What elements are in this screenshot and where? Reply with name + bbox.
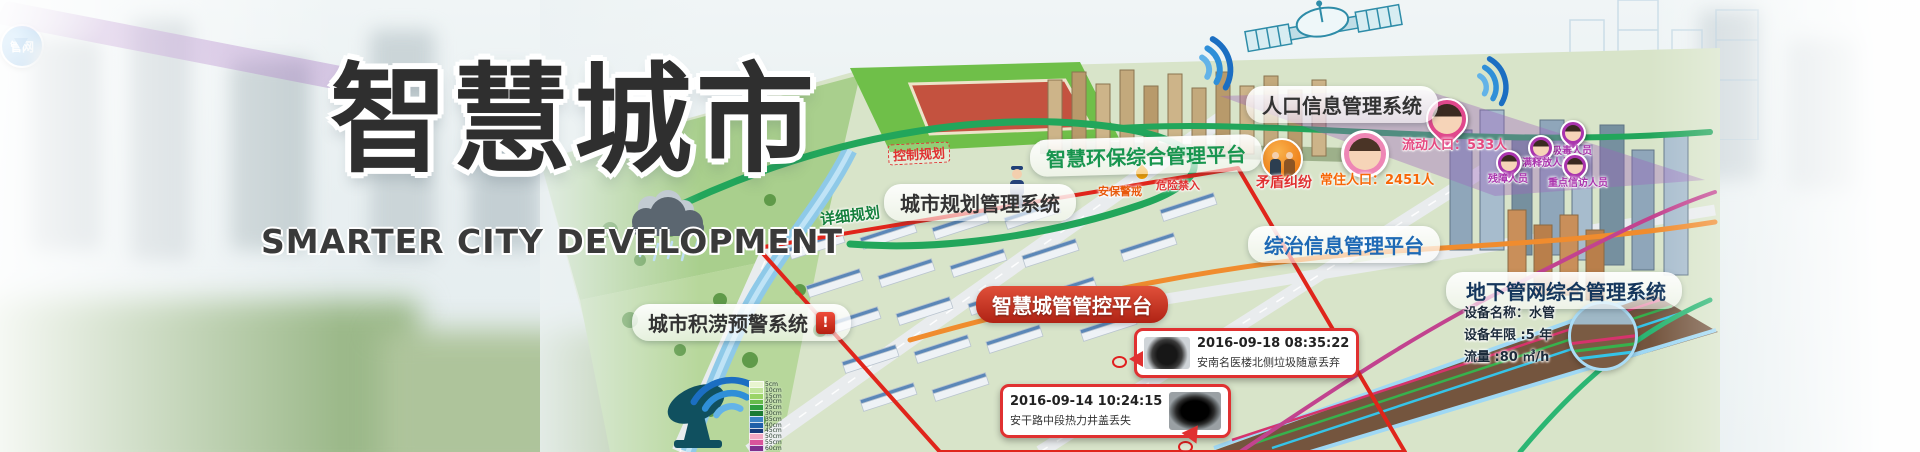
- incident-datetime: 2016-09-18 08:35:22: [1197, 336, 1349, 351]
- tag-resident-population: 常住人口：2451人: [1320, 169, 1434, 188]
- incident-callout-trash: 2016-09-18 08:35:22 安南名医楼北侧垃圾随意丢弃: [1134, 328, 1359, 378]
- blurred-building: [30, 40, 100, 250]
- tag-person-category: 残障人员: [1488, 170, 1528, 185]
- page-subtitle: SMARTER CITY DEVELOPMENT: [261, 222, 843, 261]
- incident-datetime: 2016-09-14 10:24:15: [1010, 394, 1162, 409]
- trash-photo: [1144, 337, 1190, 369]
- tag-dispute: 矛盾纠纷: [1256, 172, 1312, 192]
- tag-security-patrol: 安保警戒: [1098, 183, 1142, 199]
- pipe-crosssection-view: [1568, 301, 1638, 371]
- pipe-device-name: 设备名称：水管: [1464, 302, 1555, 321]
- manhole-photo: [1169, 392, 1221, 430]
- page-title: 智慧城市: [330, 56, 818, 186]
- tag-control-planning: 控制规划: [887, 141, 950, 165]
- flood-warning-text: 城市积涝预警系统: [648, 308, 808, 337]
- pipe-device-age: 设备年限 :5 年: [1464, 324, 1552, 343]
- incident-callout-manhole: 2016-09-14 10:24:15 安干路中段热力井盖丢失: [1000, 384, 1231, 438]
- label-environment-platform: 智慧环保综合管理平台: [1030, 134, 1263, 177]
- smart-city-banner: 智慧城市 SMARTER CITY DEVELOPMENT: [0, 0, 1920, 452]
- tag-person-category: 重点信访人员: [1548, 174, 1608, 189]
- incident-description: 安干路中段热力井盖丢失: [1010, 412, 1162, 428]
- alert-icon: !: [816, 312, 835, 334]
- label-population-system: 人口信息管理系统: [1246, 86, 1438, 123]
- flood-legend: 5cm10cm15cm20cm25cm30cm35cm40cm45cm50cm5…: [749, 382, 782, 452]
- tag-danger-no-entry: 危险禁入: [1156, 177, 1200, 193]
- label-city-management-platform: 智慧城管管控平台: [976, 286, 1168, 323]
- tag-migrant-population: 流动人口：533人: [1402, 134, 1507, 153]
- pipe-flow-rate: 流量 :80 ㎥/h: [1464, 346, 1549, 365]
- incident-description: 安南名医楼北侧垃圾随意丢弃: [1197, 354, 1349, 370]
- blurred-building: [1790, 40, 1860, 190]
- blurred-trees: [0, 300, 420, 452]
- label-planning-system: 城市规划管理系统: [884, 184, 1076, 221]
- label-governance-platform: 综治信息管理平台: [1248, 226, 1440, 263]
- label-flood-warning-system: 城市积涝预警系统 !: [632, 304, 851, 341]
- legend-item: 60cm: [749, 446, 782, 452]
